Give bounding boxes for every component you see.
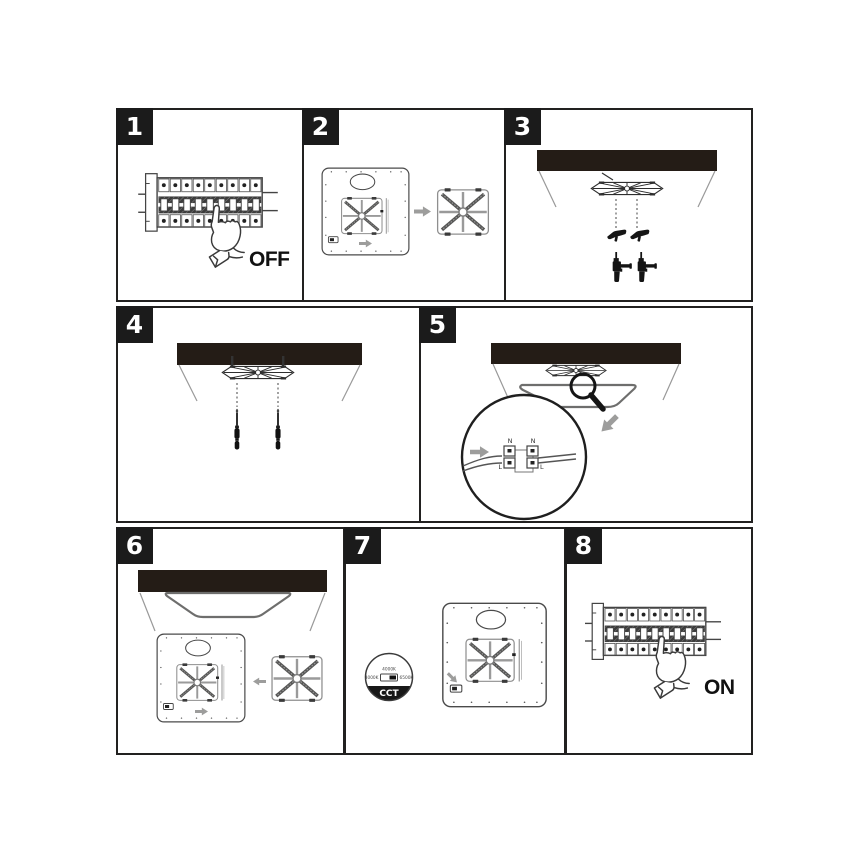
step-number-badge: 5	[419, 306, 456, 343]
screwdriver-icon	[234, 409, 239, 450]
terminal-label-n-right: N	[531, 437, 536, 445]
step-2-panel: 2	[302, 108, 506, 302]
mounting-bracket-icon	[272, 655, 322, 702]
screwdriver-icon	[275, 409, 280, 450]
step-number-badge: 4	[116, 306, 153, 343]
panel-back-icon	[443, 603, 546, 706]
bracket-on-ceiling-icon	[591, 182, 662, 196]
detach-arrow-icon	[414, 206, 431, 216]
cct-detail-badge: 4000K 3000K 6500K CCT	[365, 653, 414, 701]
terminal-label-n-left: N	[508, 437, 513, 445]
instruction-sheet: 1 OFF 2 3	[0, 0, 868, 868]
step-3-illustration	[504, 108, 753, 302]
step-1-panel: 1 OFF	[116, 108, 304, 302]
screw-pin	[231, 356, 233, 366]
ceiling-bar	[491, 343, 681, 364]
step-number-badge: 6	[116, 527, 153, 564]
step-number-badge: 8	[565, 527, 602, 564]
step-8-caption: ON	[704, 676, 735, 700]
wall-anchor-icon	[607, 230, 626, 242]
step-6-panel: 6	[116, 527, 345, 755]
step-3-panel: 3	[504, 108, 753, 302]
zoom-arrow-icon	[597, 411, 622, 436]
cct-slider-knob	[390, 676, 397, 680]
step-7-panel: 4000K 3000K 6500K CCT 7	[344, 527, 566, 755]
perspective-line	[539, 171, 556, 207]
terminal-label-l-right: L	[540, 463, 544, 471]
panel-back-icon	[322, 168, 409, 255]
perspective-line	[698, 171, 715, 207]
perspective-line	[179, 365, 197, 401]
cct-option-top: 4000K	[382, 667, 396, 673]
perspective-line	[342, 365, 360, 401]
ceiling-bar	[537, 150, 717, 171]
step-number-badge: 1	[116, 108, 153, 145]
circuit-breaker-icon	[138, 174, 278, 231]
screw-pin	[282, 356, 284, 366]
circuit-breaker-icon	[585, 603, 721, 659]
step-number-badge: 2	[302, 108, 339, 145]
attach-arrow-icon	[253, 678, 266, 686]
ceiling-bar	[138, 570, 327, 592]
step-1-caption: OFF	[249, 248, 290, 272]
step-number-badge: 7	[344, 527, 381, 564]
bracket-on-ceiling-icon	[222, 366, 293, 380]
perspective-line	[140, 593, 155, 631]
drill-icon	[613, 252, 632, 282]
wall-anchor-icon	[630, 230, 649, 242]
step-5-panel: N N L L 5	[419, 306, 753, 523]
perspective-line	[493, 364, 509, 400]
terminal-label-l-left: L	[498, 463, 502, 471]
mounting-bracket-icon	[438, 188, 489, 236]
step-4-illustration	[116, 306, 421, 523]
drill-icon	[638, 252, 657, 282]
mounted-panel	[166, 593, 291, 617]
step-8-panel: 8 ON	[565, 527, 753, 755]
cct-option-left: 3000K	[365, 675, 379, 681]
cct-label: CCT	[379, 689, 399, 699]
step-number-badge: 3	[504, 108, 541, 145]
step-4-panel: 4	[116, 306, 421, 523]
cct-option-right: 6500K	[400, 675, 414, 681]
leader-line	[602, 173, 613, 180]
perspective-line	[310, 593, 325, 631]
step-5-illustration: N N L L	[419, 306, 753, 523]
ceiling-bar	[177, 343, 362, 365]
panel-back-icon	[157, 634, 245, 722]
perspective-line	[663, 364, 679, 400]
